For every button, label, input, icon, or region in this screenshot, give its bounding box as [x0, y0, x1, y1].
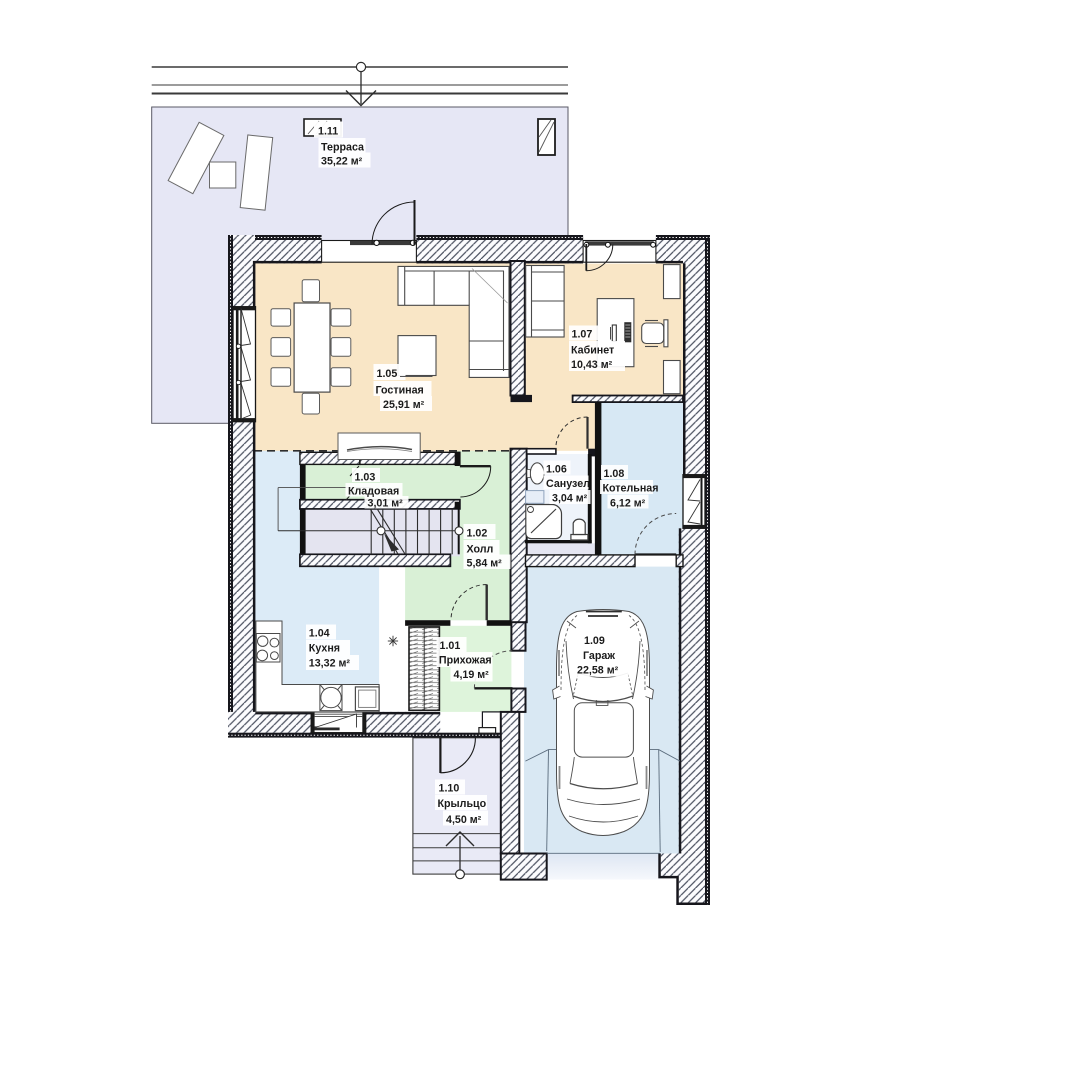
svg-text:1.07: 1.07: [572, 329, 593, 341]
svg-text:35,22 м²: 35,22 м²: [321, 156, 363, 168]
svg-text:1.09: 1.09: [584, 635, 605, 647]
svg-text:22,58 м²: 22,58 м²: [577, 665, 619, 677]
svg-text:1.01: 1.01: [440, 640, 461, 652]
svg-text:13,32 м²: 13,32 м²: [309, 658, 351, 670]
svg-text:6,12 м²: 6,12 м²: [610, 498, 646, 510]
svg-text:Прихожая: Прихожая: [439, 655, 492, 667]
svg-text:1.08: 1.08: [604, 468, 625, 480]
svg-text:25,91 м²: 25,91 м²: [383, 399, 425, 411]
svg-text:5,84 м²: 5,84 м²: [467, 558, 503, 570]
svg-text:Крыльцо: Крыльцо: [438, 798, 487, 810]
svg-text:1.03: 1.03: [355, 472, 376, 484]
svg-text:1.05: 1.05: [377, 368, 398, 380]
svg-text:Кухня: Кухня: [309, 643, 340, 655]
svg-text:3,01 м²: 3,01 м²: [368, 498, 404, 510]
svg-text:Гостиная: Гостиная: [376, 385, 424, 397]
svg-text:1.06: 1.06: [546, 464, 567, 476]
svg-text:1.10: 1.10: [439, 783, 460, 795]
svg-text:10,43 м²: 10,43 м²: [571, 359, 613, 371]
svg-text:Гараж: Гараж: [583, 650, 615, 662]
svg-text:1.11: 1.11: [318, 126, 338, 138]
svg-text:Холл: Холл: [467, 544, 494, 556]
svg-text:4,50 м²: 4,50 м²: [446, 814, 482, 826]
svg-text:1.02: 1.02: [467, 528, 488, 540]
svg-text:3,04 м²: 3,04 м²: [552, 493, 588, 505]
svg-text:4,19 м²: 4,19 м²: [454, 669, 490, 681]
svg-text:Санузел: Санузел: [546, 478, 590, 490]
svg-text:Котельная: Котельная: [603, 483, 659, 495]
svg-text:Кабинет: Кабинет: [571, 345, 614, 357]
svg-text:Кладовая: Кладовая: [348, 486, 399, 498]
svg-text:Терраса: Терраса: [321, 142, 365, 154]
svg-text:1.04: 1.04: [309, 628, 330, 640]
